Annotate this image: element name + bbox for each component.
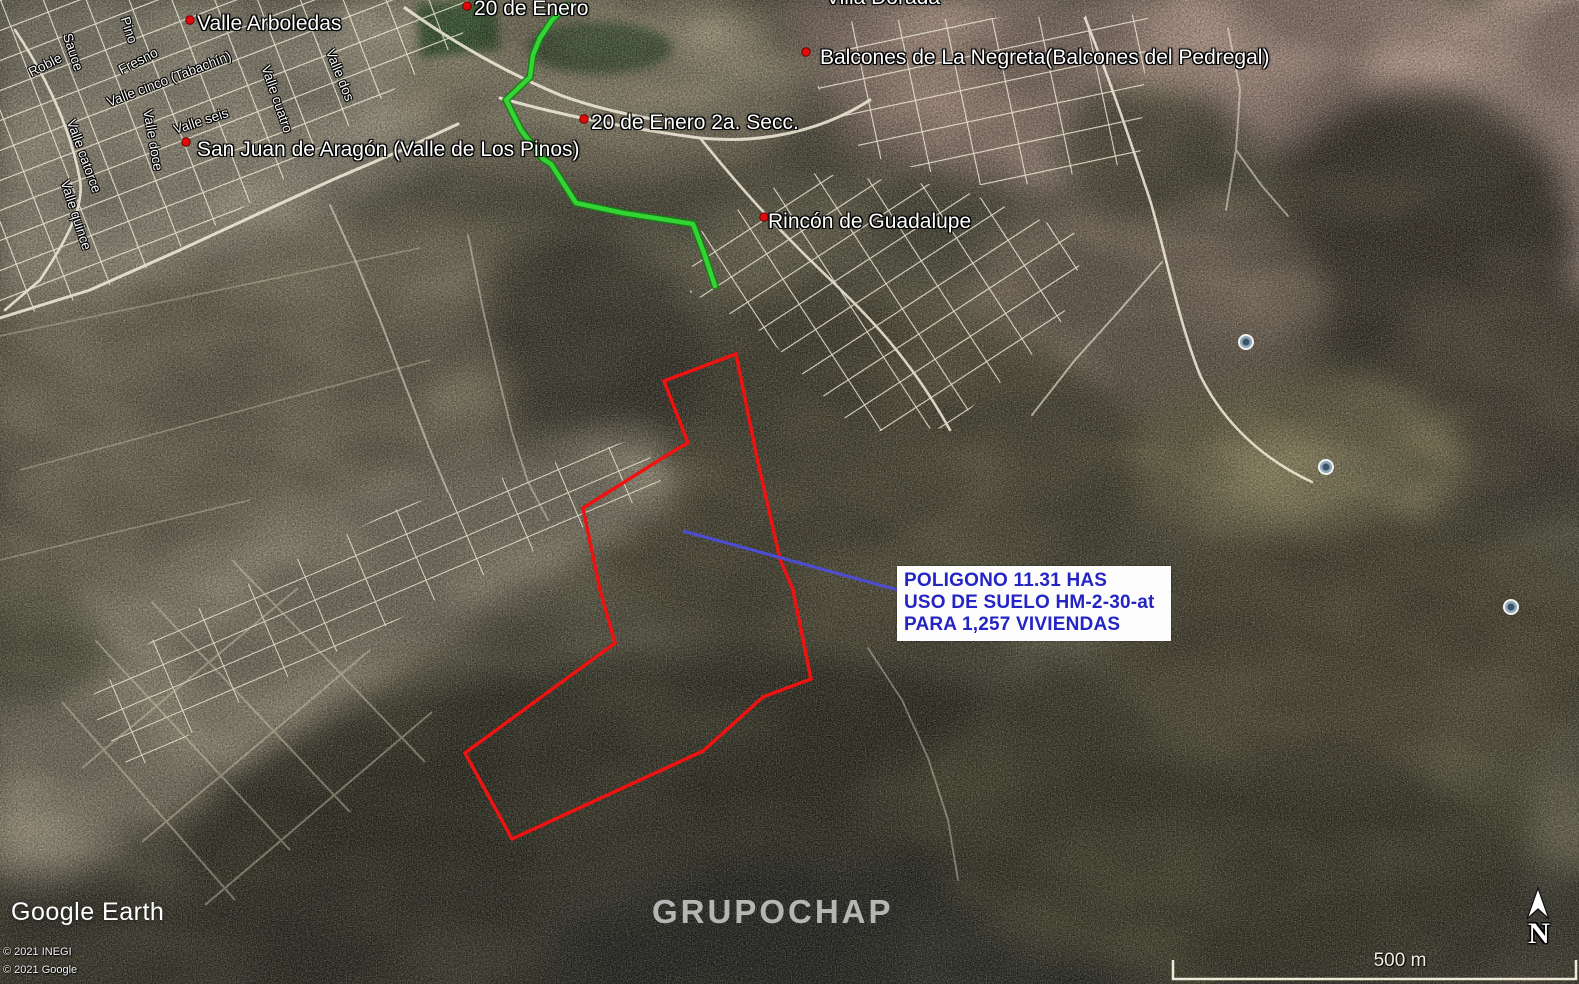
place-label-20-de-enero[interactable]: 20 de Enero xyxy=(474,0,588,21)
parcel-callout: POLIGONO 11.31 HAS USO DE SUELO HM-2-30-… xyxy=(897,566,1171,641)
photo-icon xyxy=(1504,600,1518,614)
copyright-inegi: © 2021 INEGI xyxy=(3,946,72,958)
place-label-valle-arboledas[interactable]: Valle Arboledas xyxy=(197,12,341,36)
callout-line-area: POLIGONO 11.31 HAS xyxy=(904,570,1164,592)
company-watermark: GRUPOCHAP xyxy=(652,893,894,931)
place-label-san-juan[interactable]: San Juan de Aragón (Valle de Los Pinos) xyxy=(197,138,580,162)
placemark-20-de-enero xyxy=(463,2,471,10)
placemark-san-juan xyxy=(182,138,190,146)
place-label-balcones[interactable]: Balcones de La Negreta(Balcones del Pedr… xyxy=(820,46,1269,70)
photo-icon xyxy=(1239,335,1253,349)
callout-line-land-use: USO DE SUELO HM-2-30-at xyxy=(904,592,1164,614)
place-label-villa-dorada[interactable]: Villa Dorada xyxy=(826,0,940,10)
callout-line-housing: PARA 1,257 VIVIENDAS xyxy=(904,614,1164,636)
placemark-rincon xyxy=(760,213,768,221)
placemark-20-de-enero-2a xyxy=(580,115,588,123)
photo-icon xyxy=(1319,460,1333,474)
place-label-20-de-enero-2a[interactable]: 20 de Enero 2a. Secc. xyxy=(591,111,799,135)
scale-bar-label: 500 m xyxy=(1352,950,1448,972)
copyright-google: © 2021 Google xyxy=(3,964,77,976)
placemark-balcones xyxy=(802,48,810,56)
place-label-rincon[interactable]: Rincón de Guadalupe xyxy=(768,210,971,234)
google-earth-viewport[interactable]: 20 de Enero Valle Arboledas Villa Dorada… xyxy=(0,0,1579,984)
north-label: N xyxy=(1521,917,1557,951)
placemark-valle-arboledas xyxy=(186,16,194,24)
google-earth-logo: Google Earth xyxy=(11,898,164,927)
